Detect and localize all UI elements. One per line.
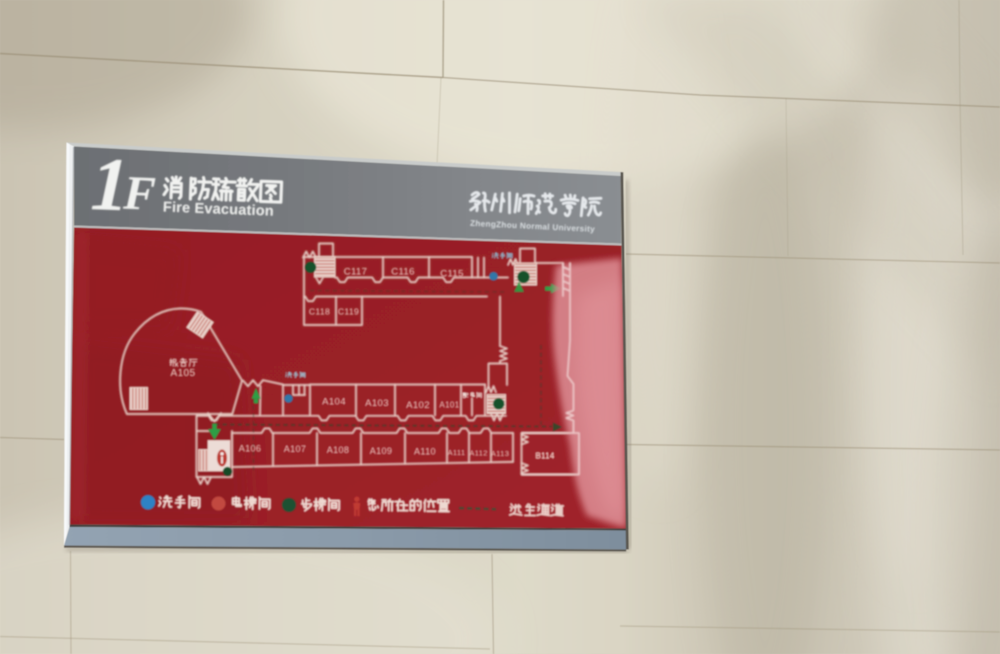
svg-text:A103: A103	[365, 398, 389, 409]
svg-text:A105: A105	[171, 368, 196, 379]
svg-text:C117: C117	[344, 267, 368, 278]
svg-text:F: F	[122, 166, 157, 220]
svg-text:A112: A112	[469, 449, 488, 458]
svg-text:A110: A110	[414, 447, 436, 457]
svg-text:A107: A107	[284, 444, 307, 454]
svg-text:C118: C118	[309, 307, 330, 317]
svg-text:A101: A101	[439, 401, 459, 410]
svg-text:A104: A104	[322, 397, 346, 408]
svg-text:C115: C115	[440, 269, 464, 280]
svg-text:C116: C116	[391, 267, 415, 278]
svg-text:A113: A113	[491, 449, 510, 458]
svg-text:A102: A102	[406, 400, 430, 411]
svg-text:B114: B114	[536, 452, 555, 461]
svg-text:A108: A108	[327, 445, 350, 455]
svg-text:A109: A109	[370, 446, 393, 456]
svg-text:C119: C119	[338, 307, 359, 317]
svg-text:A111: A111	[447, 448, 465, 457]
svg-text:A106: A106	[239, 444, 262, 454]
